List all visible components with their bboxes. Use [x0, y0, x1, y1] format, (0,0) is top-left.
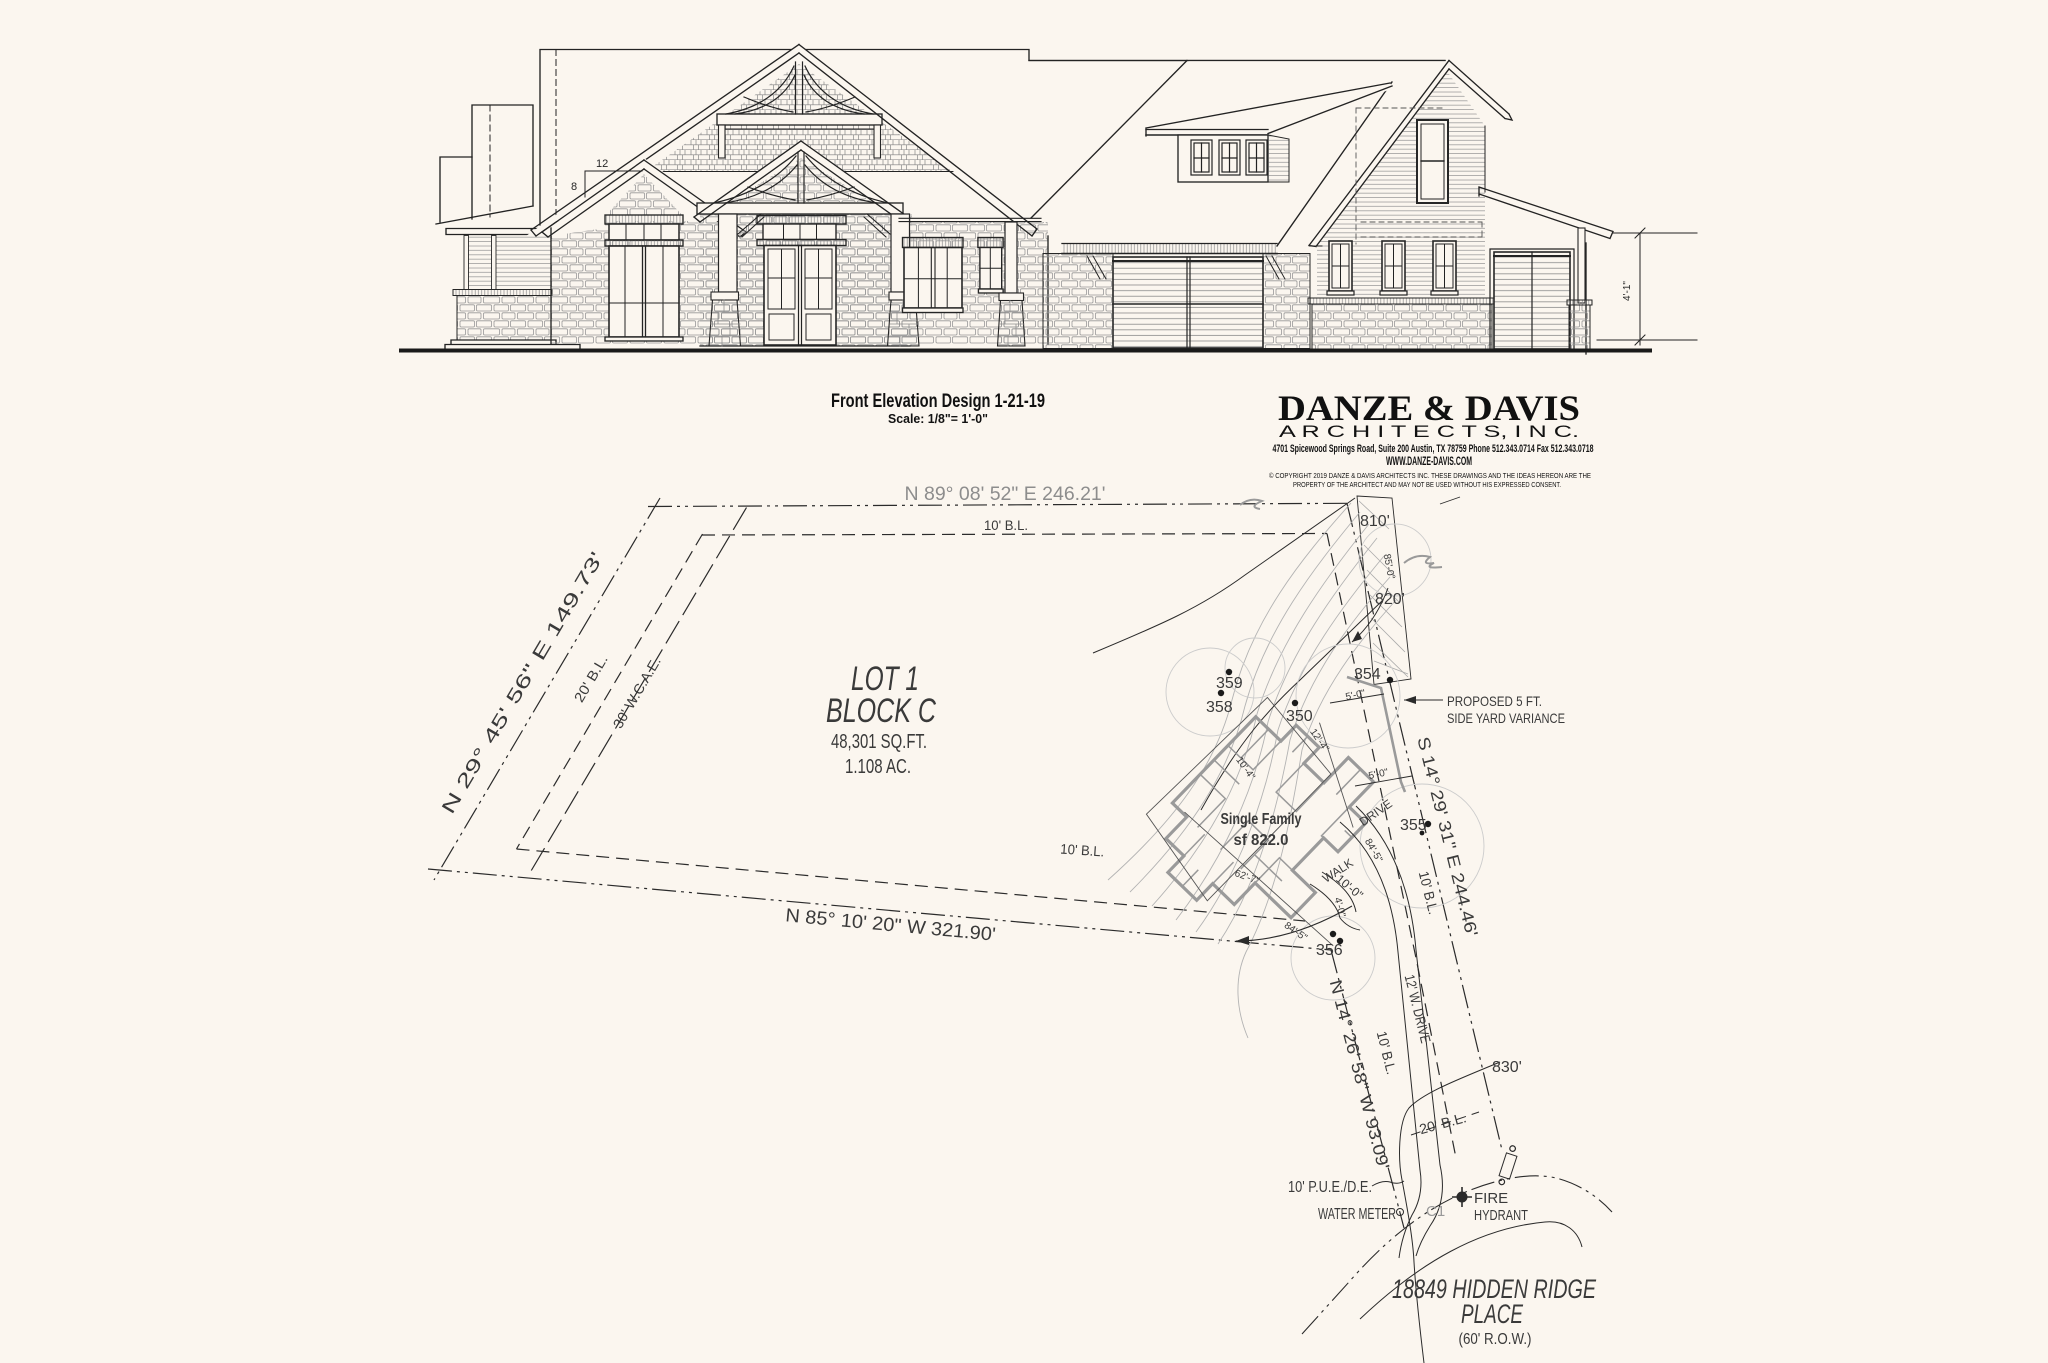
svg-text:WWW.DANZE-DAVIS.COM: WWW.DANZE-DAVIS.COM [1386, 454, 1472, 468]
svg-text:HYDRANT: HYDRANT [1474, 1207, 1528, 1224]
svg-text:4'-1": 4'-1" [1622, 281, 1633, 301]
svg-text:sf 822.0: sf 822.0 [1234, 832, 1289, 849]
svg-text:350: 350 [1286, 708, 1313, 725]
svg-text:N 89° 08' 52" E 246.21': N 89° 08' 52" E 246.21' [905, 484, 1106, 505]
svg-text:10' P.U.E./D.E.: 10' P.U.E./D.E. [1288, 1179, 1372, 1196]
svg-text:8: 8 [571, 181, 577, 193]
svg-text:359: 359 [1216, 675, 1243, 692]
svg-text:Scale: 1/8"= 1'-0": Scale: 1/8"= 1'-0" [888, 411, 988, 426]
svg-text:FIRE: FIRE [1474, 1190, 1508, 1207]
svg-text:12: 12 [596, 158, 608, 170]
svg-text:Single Family: Single Family [1221, 811, 1302, 828]
svg-text:820': 820' [1375, 591, 1405, 608]
svg-text:355: 355 [1400, 817, 1427, 834]
svg-text:358: 358 [1206, 699, 1233, 716]
svg-text:810': 810' [1360, 513, 1390, 530]
svg-text:© COPYRIGHT 2019 DANZE & DA: © COPYRIGHT 2019 DANZE & DAVIS ARCHITECT… [1269, 472, 1591, 480]
svg-text:PROPOSED 5 FT.: PROPOSED 5 FT. [1447, 693, 1542, 709]
svg-text:PLACE: PLACE [1461, 1299, 1524, 1329]
svg-text:48,301 SQ.FT.: 48,301 SQ.FT. [831, 731, 927, 753]
svg-text:356: 356 [1316, 942, 1343, 959]
svg-text:1.108 AC.: 1.108 AC. [845, 756, 911, 778]
svg-text:(60' R.O.W.): (60' R.O.W.) [1459, 1331, 1532, 1348]
svg-text:Front Elevation Design 1-21-19: Front Elevation Design 1-21-19 [831, 391, 1045, 412]
svg-text:PROPERTY OF THE ARCHITECT: PROPERTY OF THE ARCHITECT AND MAY NOT BE… [1293, 482, 1561, 489]
svg-text:WATER METER: WATER METER [1318, 1206, 1396, 1223]
svg-text:10' B.L.: 10' B.L. [984, 517, 1028, 533]
svg-text:C1: C1 [1426, 1203, 1445, 1220]
svg-text:BLOCK C: BLOCK C [826, 692, 936, 730]
svg-text:A R C H I T E C T S, I N C.: A R C H I T E C T S, I N C. [1279, 422, 1579, 441]
svg-text:830': 830' [1492, 1059, 1522, 1076]
svg-text:354: 354 [1354, 666, 1381, 683]
svg-text:SIDE YARD VARIANCE: SIDE YARD VARIANCE [1447, 710, 1565, 726]
svg-text:10' B.L.: 10' B.L. [1060, 840, 1105, 859]
